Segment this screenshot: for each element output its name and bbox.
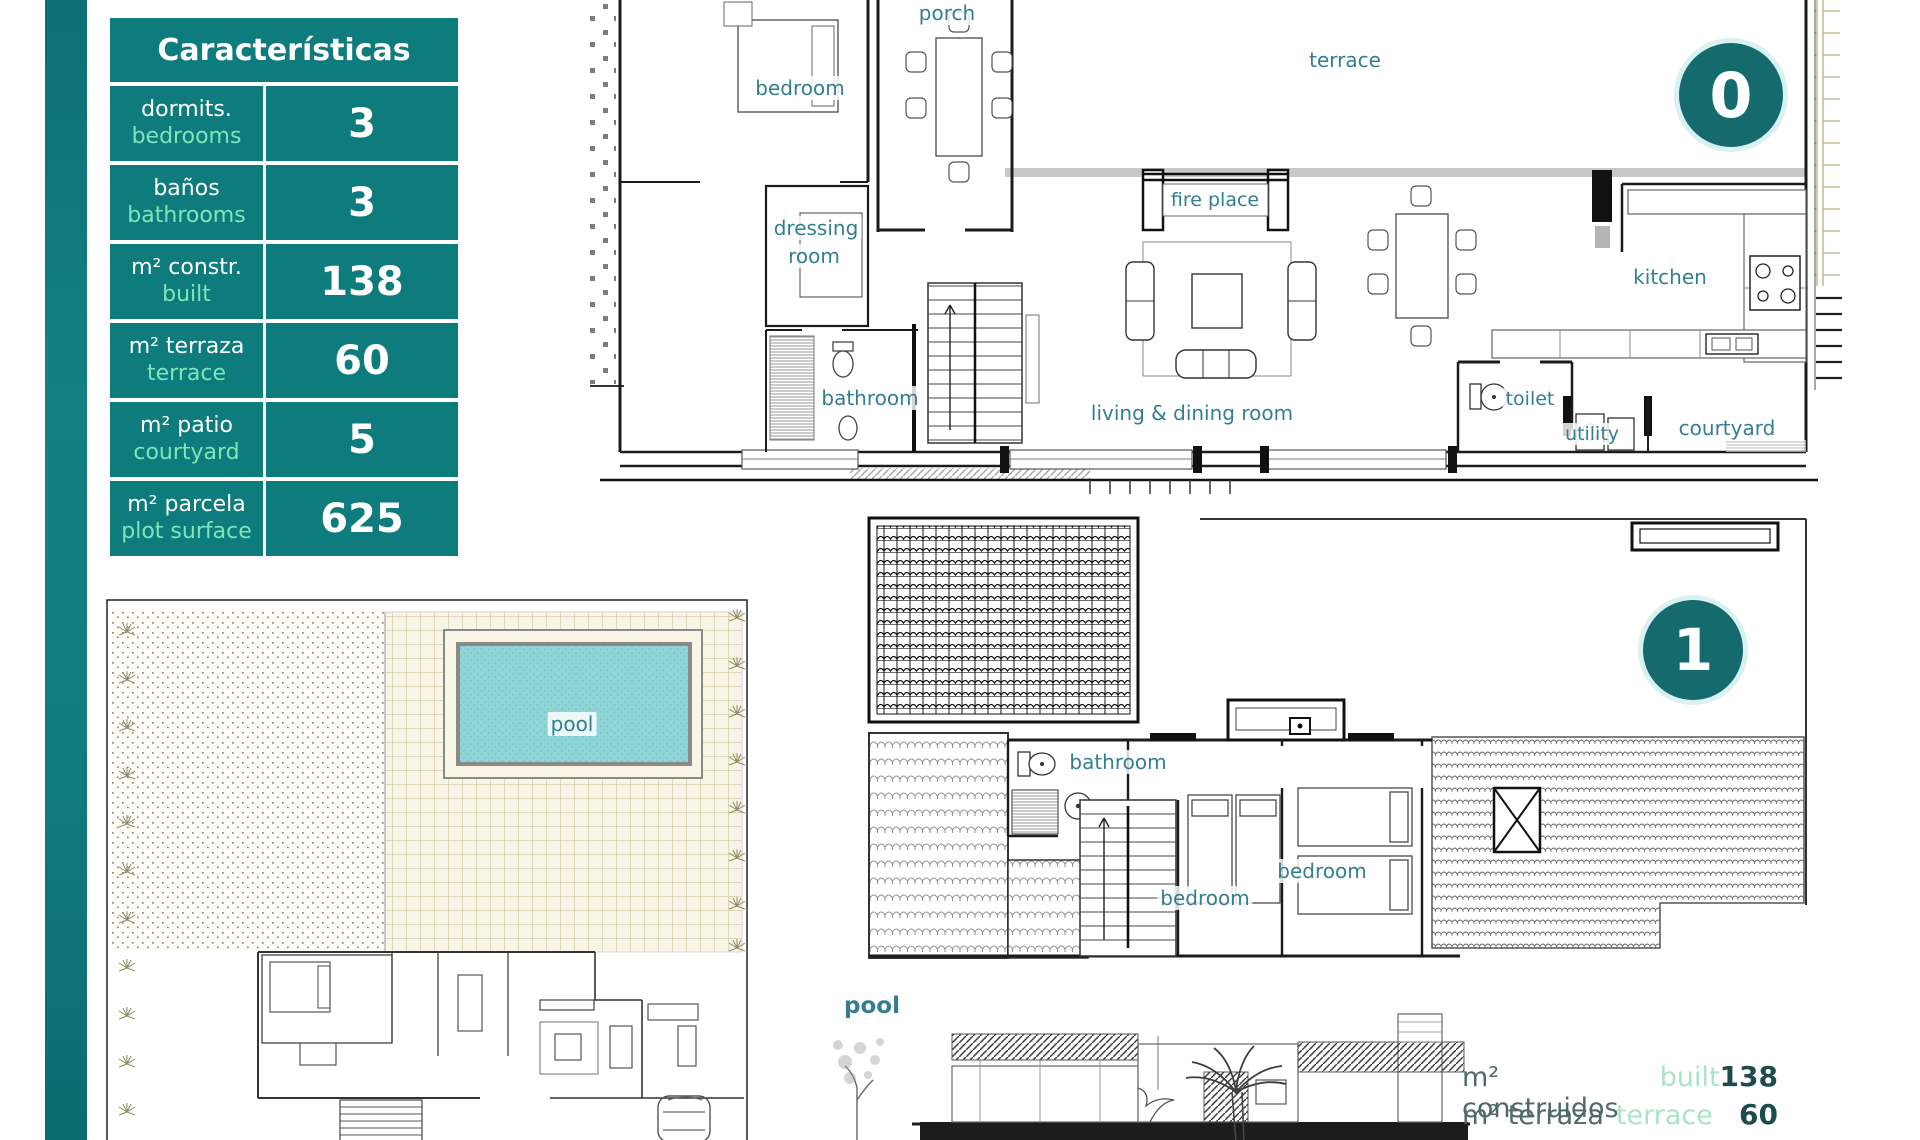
table-row-bedrooms: dormits.bedrooms 3 xyxy=(110,86,458,161)
row-label-es: m² constr. xyxy=(131,255,242,282)
label-bedroom-right: bedroom xyxy=(1274,859,1369,883)
table-row-bathrooms: bañosbathrooms 3 xyxy=(110,165,458,240)
row-label-en: terrace xyxy=(147,361,226,388)
summary-es: m² terraza xyxy=(1462,1100,1604,1131)
label-toilet: toilet xyxy=(1503,388,1558,410)
row-label-en: built xyxy=(162,282,211,309)
characteristics-table: Características dormits.bedrooms 3 baños… xyxy=(110,18,458,560)
label-dressing: dressing xyxy=(771,216,862,240)
table-row-plot-surface: m² parcelaplot surface 625 xyxy=(110,481,458,556)
label-utility: utility xyxy=(1562,423,1622,445)
label-pool-floor1: pool xyxy=(841,993,903,1019)
table-row-built: m² constr.built 138 xyxy=(110,244,458,319)
summary-row-terrace: m² terraza terrace 60 xyxy=(1462,1098,1778,1136)
table-row-terrace: m² terrazaterrace 60 xyxy=(110,323,458,398)
row-label-es: m² patio xyxy=(140,413,233,440)
label-pool-siteplan: pool xyxy=(548,712,597,736)
floor1-badge: 1 xyxy=(1643,600,1743,700)
row-label-es: dormits. xyxy=(141,97,232,124)
row-label-es: baños xyxy=(153,176,219,203)
row-label-en: courtyard xyxy=(133,440,239,467)
label-bedroom-0: bedroom xyxy=(752,76,847,100)
left-accent-bar xyxy=(45,0,87,1140)
label-living-dining: living & dining room xyxy=(1088,401,1296,425)
floor0-badge: 0 xyxy=(1679,43,1783,147)
tree xyxy=(833,1038,884,1140)
row-value: 625 xyxy=(266,481,458,556)
table-title: Características xyxy=(110,18,458,82)
table-row-courtyard: m² patiocourtyard 5 xyxy=(110,402,458,477)
row-label-en: bathrooms xyxy=(127,203,245,230)
site-plan xyxy=(107,600,747,1140)
summary-en: terrace xyxy=(1616,1100,1713,1131)
label-dressing-room: room xyxy=(785,244,843,268)
label-courtyard: courtyard xyxy=(1676,416,1779,440)
row-label-es: m² parcela xyxy=(127,492,245,519)
label-bathroom-1: bathroom xyxy=(1066,750,1169,774)
summary-value: 60 xyxy=(1739,1098,1778,1131)
floor1-plan xyxy=(869,518,1806,958)
label-bathroom-0: bathroom xyxy=(818,386,921,410)
row-value: 138 xyxy=(266,244,458,319)
label-terrace: terrace xyxy=(1306,48,1384,72)
label-kitchen: kitchen xyxy=(1630,265,1710,289)
row-label-en: plot surface xyxy=(121,519,251,546)
label-porch: porch xyxy=(916,1,978,25)
elevation-drawing xyxy=(833,1014,1470,1140)
summary-row-built: m² construidos built 138 xyxy=(1462,1060,1778,1098)
row-label-es: m² terraza xyxy=(129,334,245,361)
floorplan-brochure: { "colors": { "teal": "#0e7b7d", "badge_… xyxy=(0,0,1920,1140)
row-value: 3 xyxy=(266,86,458,161)
area-summary: m² construidos built 138 m² terraza terr… xyxy=(1462,1060,1778,1136)
row-value: 60 xyxy=(266,323,458,398)
label-bedroom-center: bedroom xyxy=(1157,886,1252,910)
row-label-en: bedrooms xyxy=(132,124,242,151)
row-value: 3 xyxy=(266,165,458,240)
summary-en: built xyxy=(1660,1062,1720,1093)
label-fire-place: fire place xyxy=(1168,189,1262,211)
row-value: 5 xyxy=(266,402,458,477)
summary-value: 138 xyxy=(1720,1060,1778,1093)
